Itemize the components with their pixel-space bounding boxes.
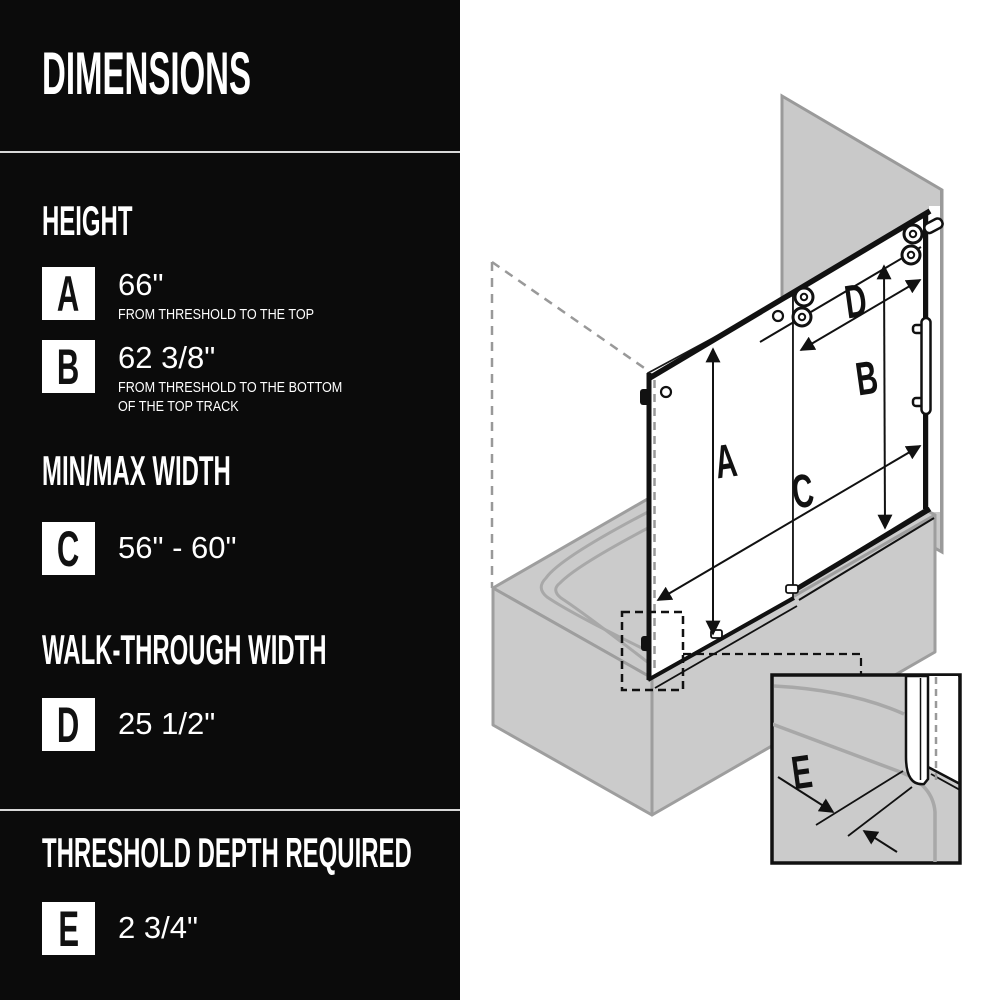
dimension-row-e: E 2 3/4" xyxy=(42,902,198,955)
wall-clamp-top xyxy=(640,389,651,405)
divider-top xyxy=(0,151,460,153)
dimensions-sheet: DIMENSIONS HEIGHT A 66" FROM THRESHOLD T… xyxy=(0,0,1000,1000)
glass-hole-right xyxy=(773,311,783,321)
section-heading-height: HEIGHT xyxy=(42,200,201,242)
dimension-row-a: A 66" FROM THRESHOLD TO THE TOP xyxy=(42,267,351,324)
dimension-desc-a: FROM THRESHOLD TO THE TOP xyxy=(118,305,351,324)
dimension-row-d: D 25 1/2" xyxy=(42,698,215,751)
guide-bracket xyxy=(786,585,798,593)
dimension-badge-e: E xyxy=(42,902,95,955)
inset-glass-edge-profile xyxy=(906,676,928,784)
dimensions-panel: DIMENSIONS HEIGHT A 66" FROM THRESHOLD T… xyxy=(0,0,460,1000)
dimension-value-e: 2 3/4" xyxy=(118,911,198,944)
dimension-value-c: 56" - 60" xyxy=(118,531,237,564)
dimension-row-b: B 62 3/8" FROM THRESHOLD TO THE BOTTOM O… xyxy=(42,340,385,416)
dimension-arrow-b xyxy=(884,266,885,528)
dimension-badge-b: B xyxy=(42,340,95,393)
dimension-badge-a: A xyxy=(42,267,95,320)
dimension-value-a: 66" xyxy=(118,268,351,301)
threshold-detail-inset: E xyxy=(772,675,960,863)
section-heading-minmax-width: MIN/MAX WIDTH xyxy=(42,450,373,492)
wall-clamp-bottom xyxy=(641,636,651,651)
dimension-row-c: C 56" - 60" xyxy=(42,522,237,575)
product-diagram-svg: A B C D E xyxy=(460,0,1000,1000)
product-diagram: A B C D E xyxy=(460,0,1000,1000)
dimension-value-b: 62 3/8" xyxy=(118,341,385,374)
dimension-badge-d: D xyxy=(42,698,95,751)
dimension-desc-b: FROM THRESHOLD TO THE BOTTOM OF THE TOP … xyxy=(118,378,385,416)
glass-hole-left xyxy=(661,387,671,397)
dimension-badge-c: C xyxy=(42,522,95,575)
divider-bottom xyxy=(0,809,460,811)
page-title: DIMENSIONS xyxy=(42,44,422,104)
dimension-value-d: 25 1/2" xyxy=(118,707,215,740)
